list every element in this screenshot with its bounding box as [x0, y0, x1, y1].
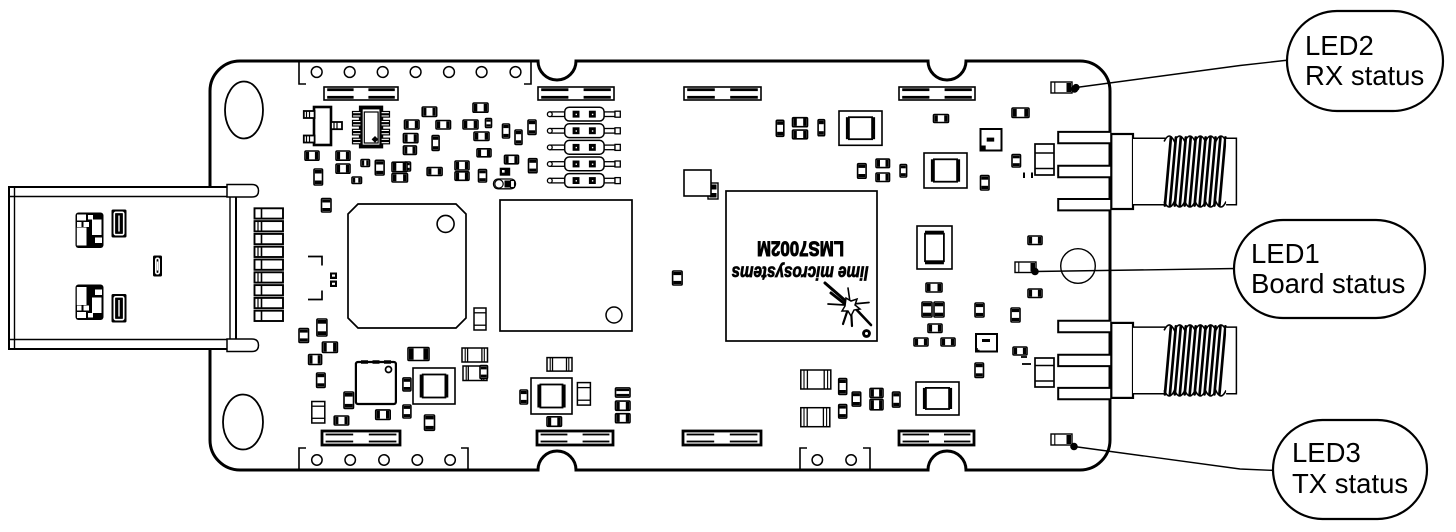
svg-text:TX status: TX status [1292, 468, 1408, 499]
svg-text:LED3: LED3 [1292, 437, 1361, 468]
svg-text:Board status: Board status [1251, 268, 1405, 299]
svg-text:RX status: RX status [1305, 60, 1424, 91]
svg-text:LED2: LED2 [1305, 30, 1374, 61]
svg-text:LED1: LED1 [1251, 238, 1320, 269]
svg-text:LMS7002M: LMS7002M [757, 237, 844, 260]
svg-text:lime microsystems: lime microsystems [732, 262, 869, 283]
